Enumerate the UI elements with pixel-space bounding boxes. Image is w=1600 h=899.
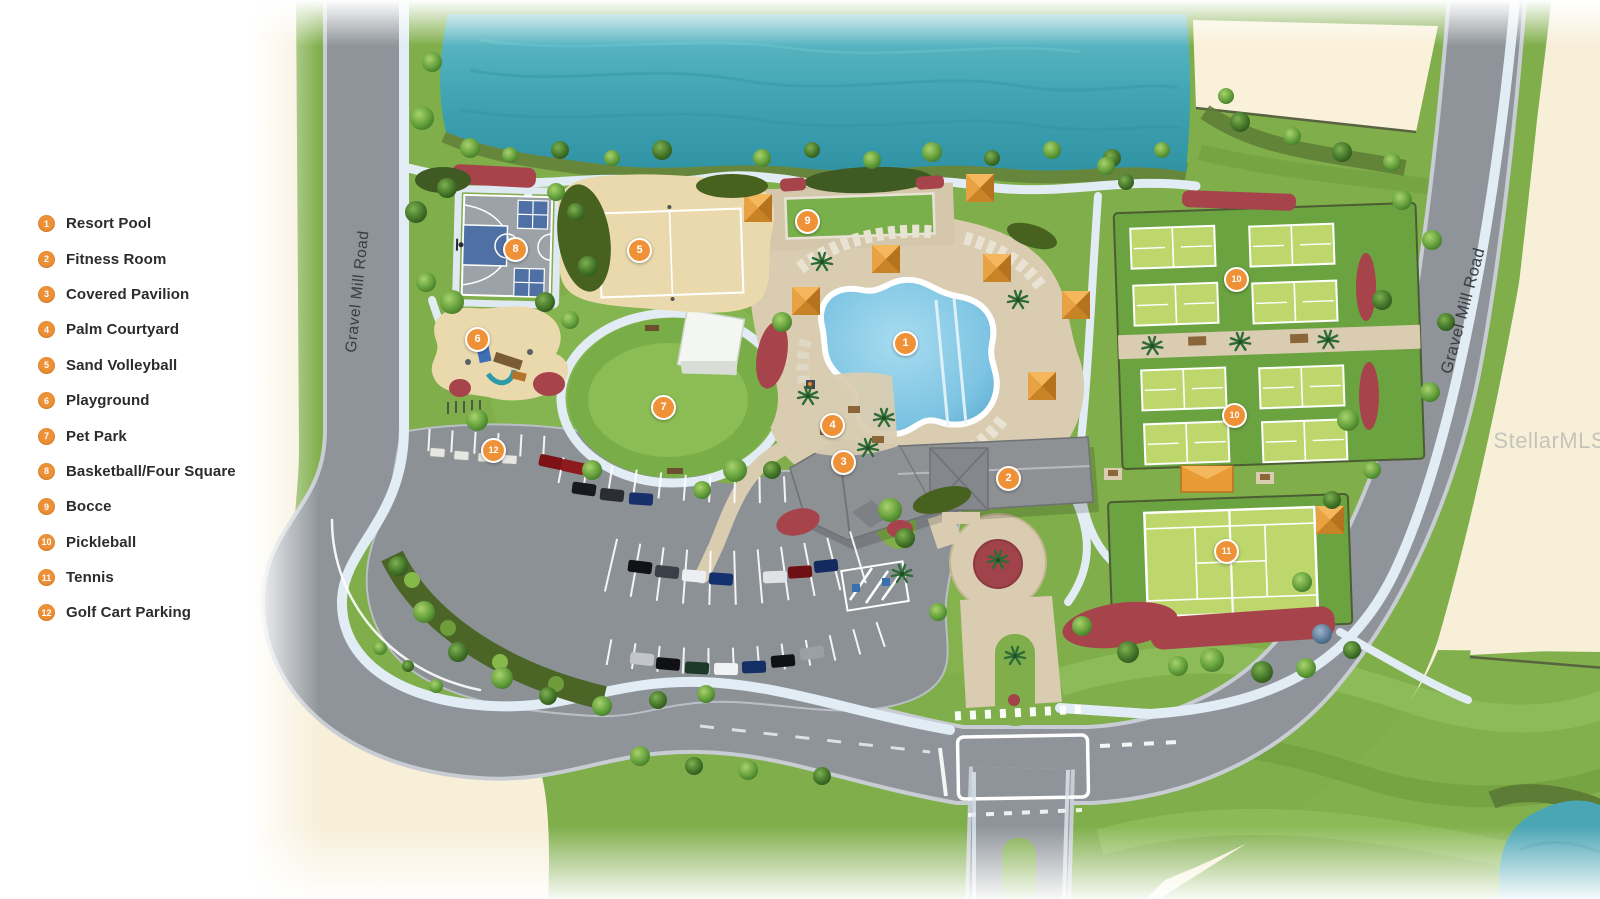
marker-pet-park: 7 — [651, 395, 676, 420]
legend-item-resort-pool: 1 Resort Pool — [38, 206, 236, 241]
legend-label: Playground — [66, 392, 150, 409]
marker-sand-volleyball: 5 — [627, 238, 652, 263]
marker-palm-courtyard: 4 — [820, 413, 845, 438]
legend-number-badge: 7 — [38, 428, 55, 445]
legend-number-badge: 9 — [38, 498, 55, 515]
site-plan-stage: Gravel Mill Road Gravel Mill Road 1 2 3 … — [0, 0, 1600, 899]
legend-label: Resort Pool — [66, 215, 151, 232]
amenity-legend: 1 Resort Pool 2 Fitness Room 3 Covered P… — [38, 206, 236, 631]
legend-item-pickleball: 10 Pickleball — [38, 525, 236, 560]
legend-item-playground: 6 Playground — [38, 383, 236, 418]
legend-number-badge: 10 — [38, 534, 55, 551]
legend-number-badge: 5 — [38, 357, 55, 374]
marker-bocce: 9 — [795, 209, 820, 234]
legend-item-basketball-four-square: 8 Basketball/Four Square — [38, 454, 236, 489]
watermark: StellarMLS — [1493, 428, 1600, 454]
marker-fitness-room: 2 — [996, 466, 1021, 491]
marker-resort-pool: 1 — [893, 331, 918, 356]
legend-label: Fitness Room — [66, 251, 166, 268]
marker-golf-cart-parking: 12 — [481, 438, 506, 463]
legend-label: Pet Park — [66, 428, 127, 445]
site-plan-map: Gravel Mill Road Gravel Mill Road — [0, 0, 1600, 899]
legend-item-pet-park: 7 Pet Park — [38, 418, 236, 453]
legend-label: Pickleball — [66, 534, 136, 551]
legend-item-sand-volleyball: 5 Sand Volleyball — [38, 348, 236, 383]
marker-basketball: 8 — [503, 237, 528, 262]
legend-label: Palm Courtyard — [66, 321, 179, 338]
legend-item-golf-cart-parking: 12 Golf Cart Parking — [38, 595, 236, 630]
legend-number-badge: 6 — [38, 392, 55, 409]
legend-number-badge: 12 — [38, 604, 55, 621]
legend-number-badge: 2 — [38, 251, 55, 268]
legend-item-bocce: 9 Bocce — [38, 489, 236, 524]
legend-item-palm-courtyard: 4 Palm Courtyard — [38, 312, 236, 347]
marker-pickleball-south: 10 — [1222, 403, 1247, 428]
legend-label: Sand Volleyball — [66, 357, 177, 374]
legend-item-fitness-room: 2 Fitness Room — [38, 241, 236, 276]
legend-label: Tennis — [66, 569, 114, 586]
shade-canopy — [678, 309, 745, 382]
legend-number-badge: 1 — [38, 215, 55, 232]
legend-label: Covered Pavilion — [66, 286, 189, 303]
legend-label: Golf Cart Parking — [66, 604, 191, 621]
marker-tennis: 11 — [1214, 539, 1239, 564]
marker-covered-pavilion: 3 — [831, 450, 856, 475]
legend-number-badge: 8 — [38, 463, 55, 480]
legend-number-badge: 11 — [38, 569, 55, 586]
legend-label: Basketball/Four Square — [66, 463, 236, 480]
pickleball-courts — [1114, 203, 1425, 469]
legend-item-covered-pavilion: 3 Covered Pavilion — [38, 277, 236, 312]
legend-number-badge: 3 — [38, 286, 55, 303]
legend-label: Bocce — [66, 498, 112, 515]
legend-number-badge: 4 — [38, 321, 55, 338]
marker-pickleball-north: 10 — [1224, 267, 1249, 292]
legend-item-tennis: 11 Tennis — [38, 560, 236, 595]
marker-playground: 6 — [465, 327, 490, 352]
